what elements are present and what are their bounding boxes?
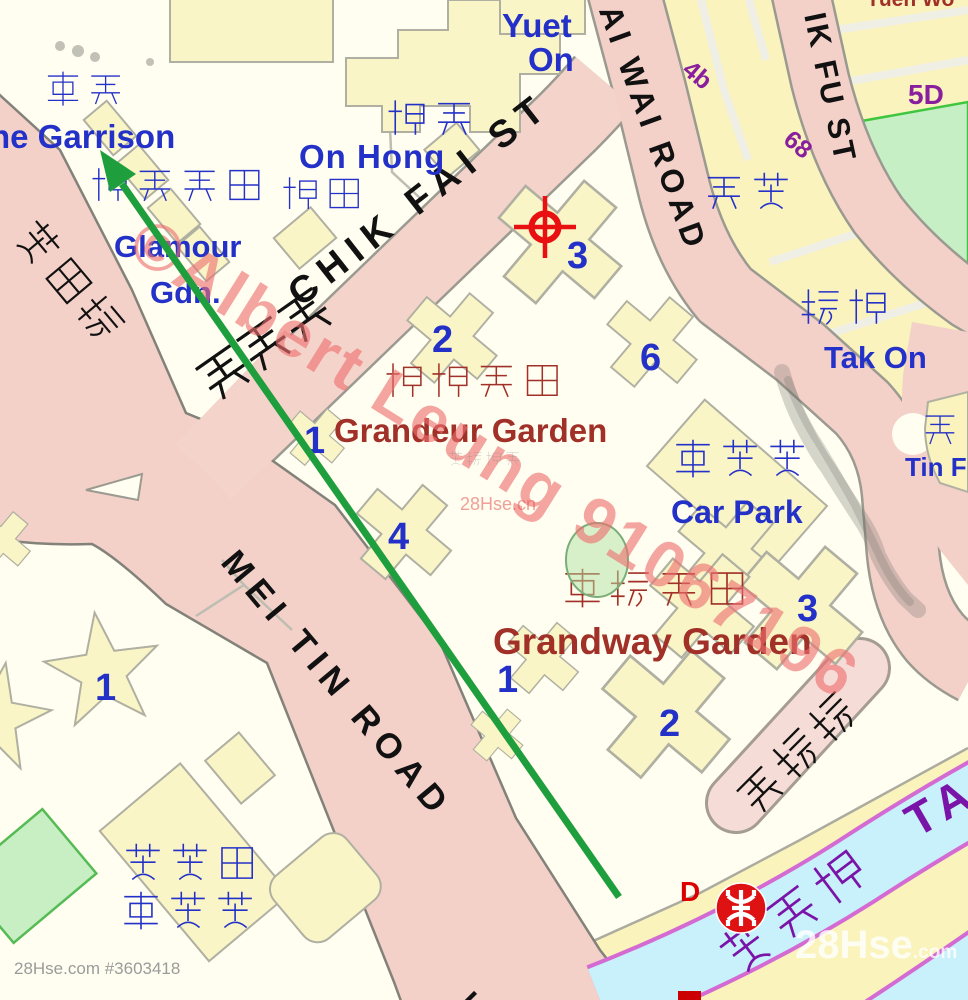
svg-text:Yuet: Yuet xyxy=(502,7,572,44)
svg-text:5D: 5D xyxy=(908,79,944,110)
svg-text:2: 2 xyxy=(659,703,680,745)
svg-text:ne Garrison: ne Garrison xyxy=(0,118,175,155)
svg-text:4: 4 xyxy=(388,516,409,558)
svg-text:28Hse.com #3603418: 28Hse.com #3603418 xyxy=(14,959,180,978)
svg-text:Tak On: Tak On xyxy=(824,340,927,375)
svg-text:On Hong: On Hong xyxy=(299,138,445,175)
svg-text:3: 3 xyxy=(567,235,588,277)
svg-text:D: D xyxy=(680,876,700,907)
svg-text:1: 1 xyxy=(95,667,116,709)
svg-text:2: 2 xyxy=(432,319,453,361)
svg-text:On: On xyxy=(528,41,574,78)
svg-text:6: 6 xyxy=(640,337,661,379)
svg-text:Yuen Wo: Yuen Wo xyxy=(866,0,954,11)
svg-text:28Hse.cn: 28Hse.cn xyxy=(460,494,536,514)
svg-text:1: 1 xyxy=(497,659,518,701)
svg-text:Car Park: Car Park xyxy=(671,494,803,530)
svg-text:Tin F: Tin F xyxy=(905,452,967,482)
